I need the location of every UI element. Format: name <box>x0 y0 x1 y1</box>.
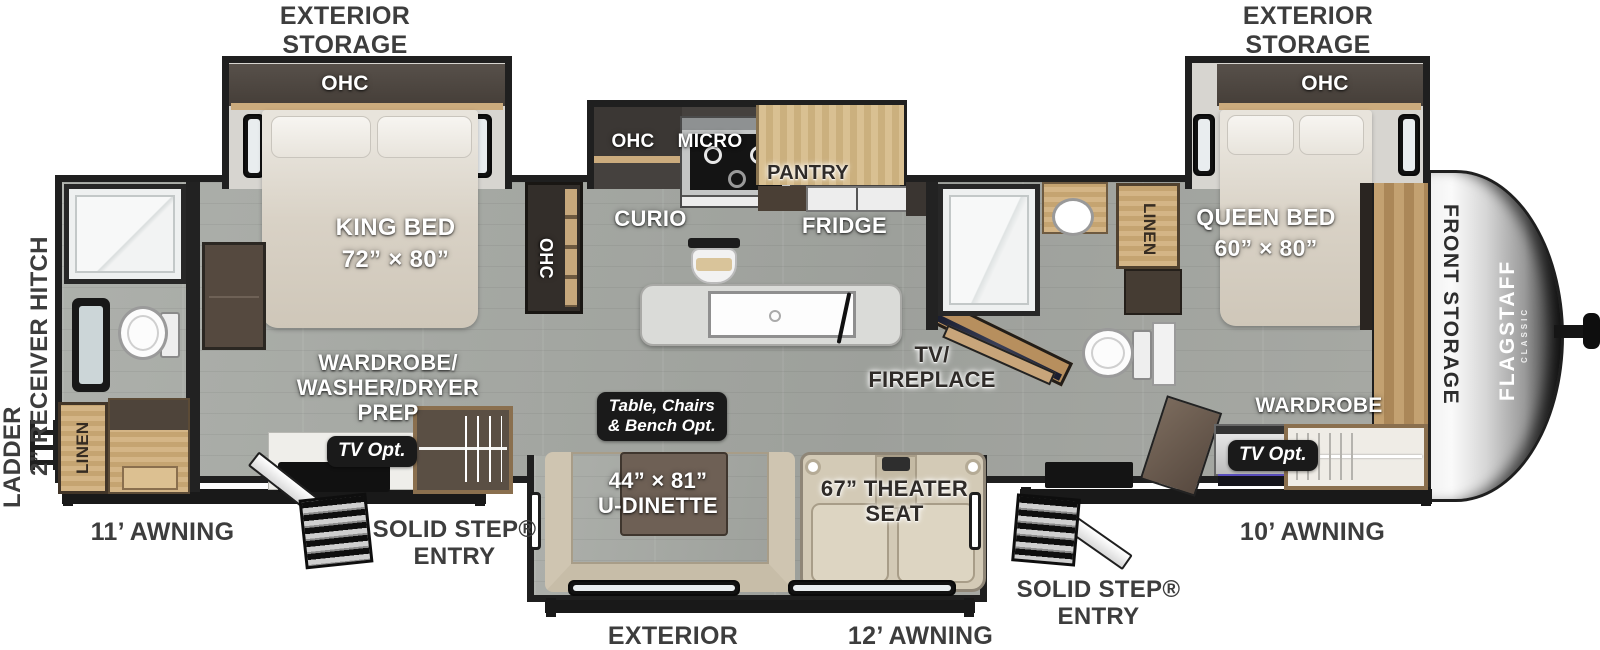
label-front-storage: FRONT STORAGE <box>1435 200 1465 410</box>
brand-logo: FLAGSTAFF <box>1495 238 1521 423</box>
shower <box>64 184 186 284</box>
toilet-backer <box>1152 322 1176 386</box>
label-tv-opt-front: TV Opt. <box>1228 440 1318 471</box>
label-ohc-front: OHC <box>1283 72 1367 96</box>
upper-cabinet <box>906 182 928 216</box>
label-entry-front: SOLID STEP® ENTRY <box>1016 576 1181 631</box>
pillow <box>1299 115 1364 155</box>
sink <box>708 291 856 338</box>
label-fridge: FRIDGE <box>792 213 897 238</box>
awning-rail-door-side <box>545 600 975 613</box>
entry-steps-front-icon <box>1011 493 1081 566</box>
label-linen-rear: LINEN <box>64 406 102 490</box>
entry-steps-rear-icon <box>299 493 374 570</box>
step-stool <box>122 466 178 490</box>
bath-sink <box>1052 198 1094 236</box>
label-tv-fireplace: TV/ FIREPLACE <box>862 342 1002 392</box>
toilet-tank-icon <box>1132 330 1152 380</box>
label-ohc-kitchen: OHC <box>602 131 664 153</box>
label-wardrobe-front: WARDROBE <box>1245 394 1393 418</box>
label-ohc-hall: OHC <box>531 216 561 300</box>
label-pantry: PANTRY <box>758 162 858 185</box>
label-curio: CURIO <box>603 206 698 231</box>
label-king-bed: KING BED 72” × 80” <box>308 212 483 277</box>
label-u-dinette: 44” × 81” U-DINETTE <box>583 468 733 518</box>
label-queen-bed: QUEEN BED 60” × 80” <box>1190 202 1342 264</box>
front-storage-floor <box>1372 183 1428 424</box>
awning-rail-front <box>1020 489 1432 504</box>
label-theater-seat: 67” THEATER SEAT <box>812 476 977 526</box>
label-awning-rear: 11’ AWNING <box>80 518 245 547</box>
bedroom-dresser <box>202 242 266 350</box>
window-icon <box>1193 114 1215 176</box>
label-micro: MICRO <box>666 131 754 153</box>
brand-series: CLASSIC <box>1519 300 1531 370</box>
kitchen-shelf <box>594 156 682 163</box>
floorplan-canvas: EXTERIOR STORAGE EXTERIOR STORAGE LADDER… <box>0 0 1600 650</box>
cabinet <box>1124 269 1182 315</box>
desk-counter <box>1045 462 1133 488</box>
medicine-cabinet <box>72 298 110 392</box>
island-stool <box>688 238 740 286</box>
bath-wall <box>926 182 938 330</box>
label-exterior-storage-rear: EXTERIOR STORAGE <box>255 2 435 59</box>
label-awning-door-side: 12’ AWNING <box>838 622 1003 650</box>
toilet-icon <box>1082 328 1134 378</box>
window-icon <box>1398 114 1420 176</box>
pillow <box>1227 115 1294 155</box>
label-exterior-storage-bottom: EXTERIOR STORAGE <box>553 622 793 650</box>
window-icon <box>788 580 956 596</box>
label-exterior-storage-front: EXTERIOR STORAGE <box>1218 2 1398 59</box>
label-dinette-option: Table, Chairs & Bench Opt. <box>597 392 727 441</box>
shower <box>938 184 1040 316</box>
window-icon <box>568 580 740 596</box>
bed-rail <box>1360 183 1372 330</box>
pillow <box>377 116 472 158</box>
label-tv-opt-rear: TV Opt. <box>327 436 417 467</box>
label-awning-front: 10’ AWNING <box>1230 518 1395 547</box>
kitchen-counter <box>758 186 806 211</box>
label-ohc-rear: OHC <box>305 72 385 96</box>
label-linen-mid: LINEN <box>1132 190 1166 268</box>
ohc-shelf <box>231 103 503 110</box>
label-entry-rear: SOLID STEP® ENTRY <box>372 516 537 571</box>
label-receiver-hitch: 2” RECEIVER HITCH <box>24 186 56 526</box>
hitch-coupler-icon <box>1583 313 1600 349</box>
pillow <box>271 116 371 158</box>
ohc-shelf <box>1219 103 1421 110</box>
toilet-icon <box>118 306 168 360</box>
label-wardrobe-prep: WARDROBE/ WASHER/DRYER PREP <box>288 350 488 425</box>
fridge-icon <box>806 186 908 212</box>
